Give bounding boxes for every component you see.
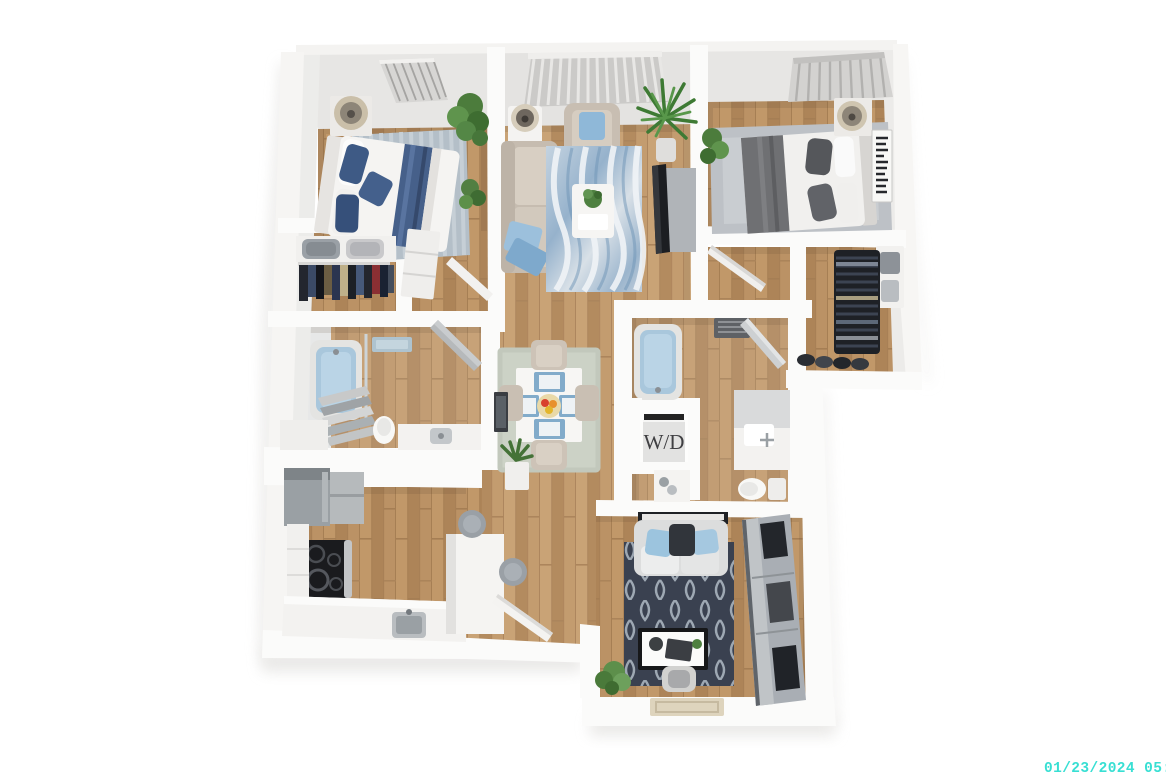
svg-text:W/D: W/D [644, 430, 685, 454]
svg-text:01/23/2024 05:2: 01/23/2024 05:2 [1044, 761, 1166, 777]
